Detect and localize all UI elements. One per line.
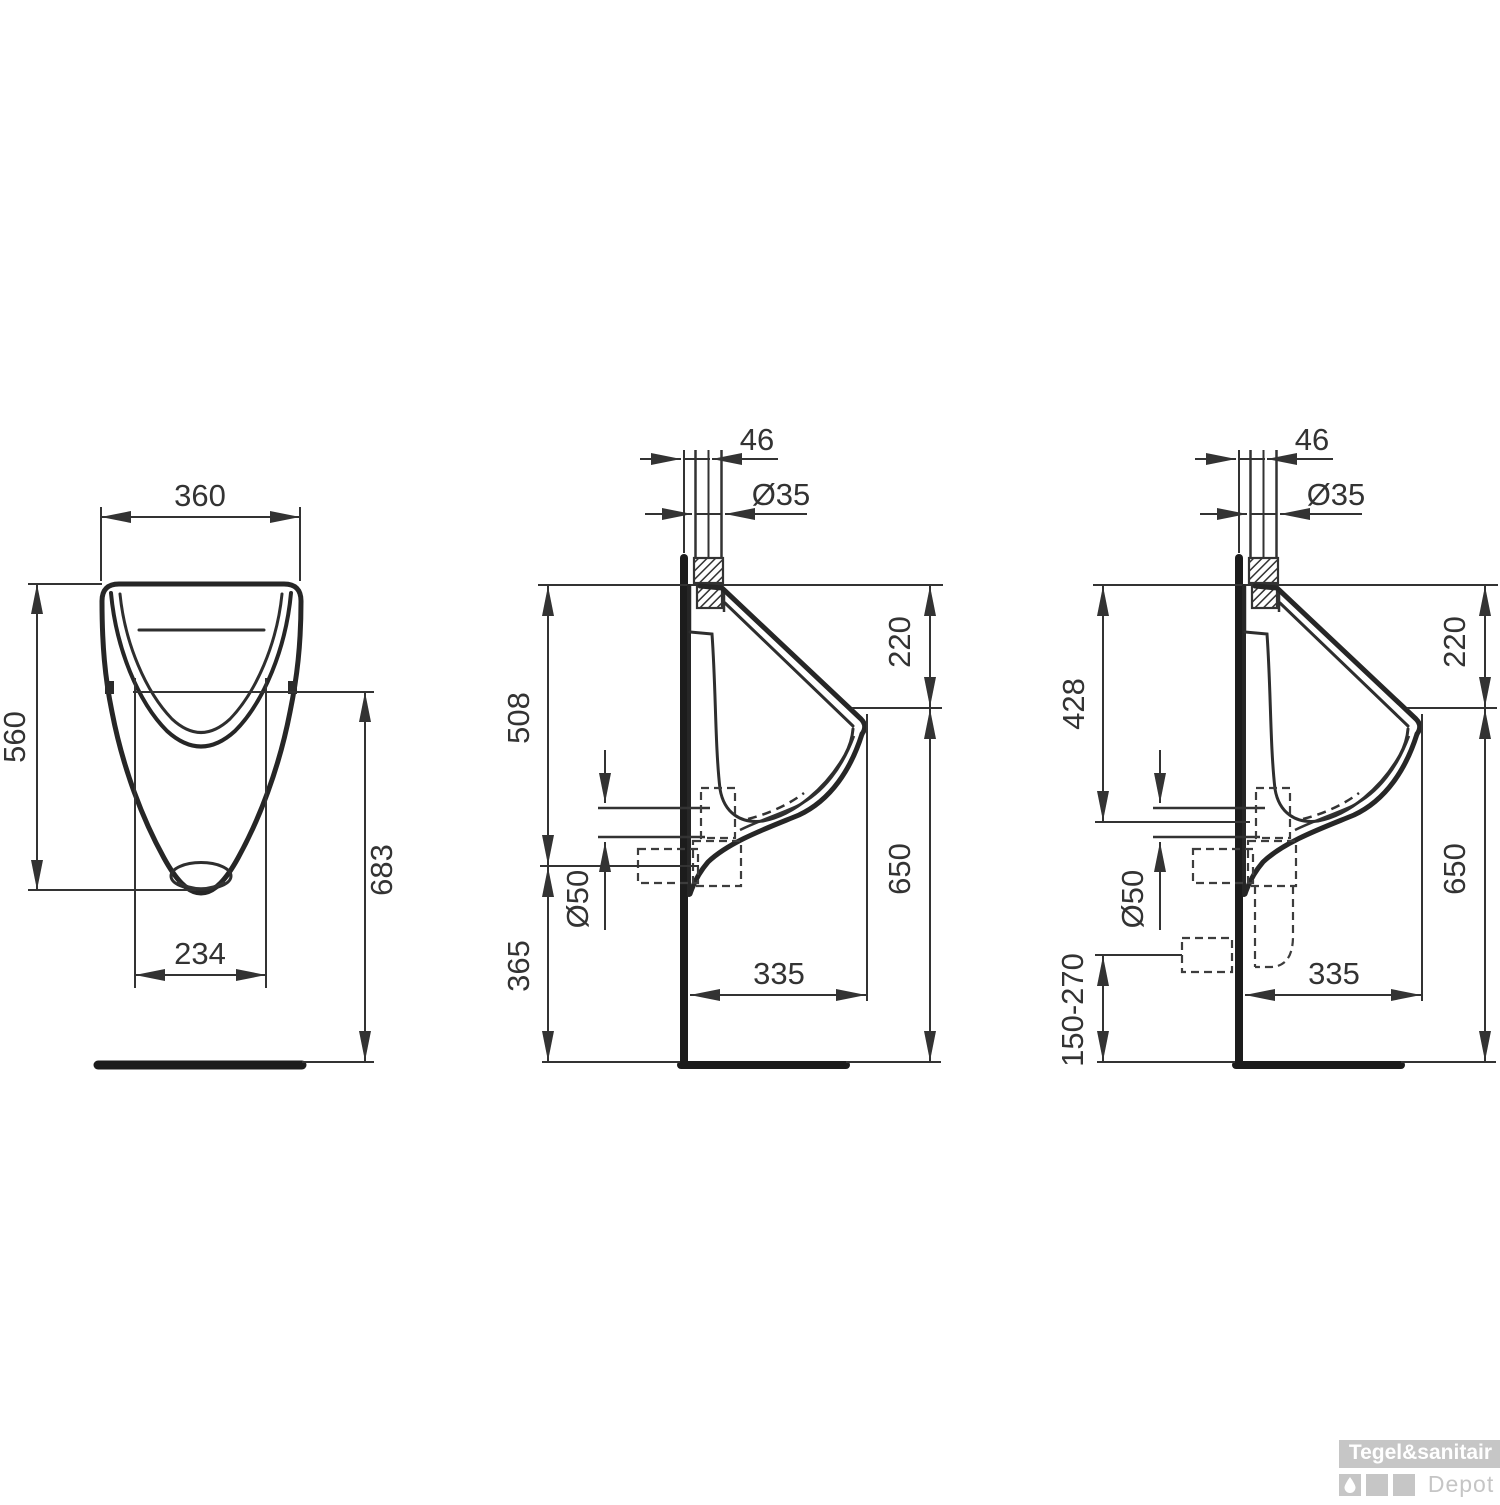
dim-label-outlet-height-range: 150-270 (1055, 953, 1090, 1067)
dim-label-overall-width: 360 (174, 478, 226, 513)
outlet-opening (171, 863, 231, 890)
hidden-elbow-pipe (1255, 886, 1293, 967)
dim-overall-width: 360 (101, 478, 300, 581)
dim-label-spout-to-floor: 650 (1437, 843, 1472, 895)
dim-label-bowl-width: 234 (174, 936, 226, 971)
watermark-brand-label: Tegel&sanitair (1339, 1440, 1500, 1468)
dim-outlet-diameter: Ø50 (560, 750, 605, 930)
dim-label-outlet-diameter: Ø50 (1115, 870, 1150, 929)
side-view-wall-outlet: 46 Ø35 508 365 Ø50 220 650 (501, 422, 943, 1065)
dim-inlet-diameter: Ø35 (1200, 477, 1365, 514)
dim-label-depth: 335 (1308, 956, 1360, 991)
dim-top-to-outlet: 428 (1056, 586, 1250, 822)
dim-label-inlet-offset: 46 (1295, 422, 1329, 457)
dim-label-outlet-diameter: Ø50 (560, 870, 595, 929)
side-fixing-left (105, 681, 114, 694)
watermark-square (1393, 1474, 1415, 1496)
dim-label-top-to-outlet: 428 (1056, 678, 1091, 730)
urinal-front-outline (102, 584, 301, 893)
dim-inlet-diameter: Ø35 (645, 477, 810, 514)
dim-label-inlet-diameter: Ø35 (1307, 477, 1366, 512)
dim-depth: 335 (1245, 956, 1421, 995)
dim-label-inlet-diameter: Ø35 (752, 477, 811, 512)
dim-label-inlet-offset: 46 (740, 422, 774, 457)
dim-depth: 335 (690, 956, 866, 995)
dim-label-top-to-spout: 220 (1437, 616, 1472, 668)
dim-bowl-width: 234 (135, 678, 266, 988)
dim-label-top-to-outlet: 508 (501, 692, 536, 744)
watermark-sub-label: Depot (1420, 1471, 1494, 1498)
front-view: 360 560 683 234 (0, 478, 399, 1065)
low-wall-connector (1182, 938, 1232, 972)
watermark-square (1366, 1474, 1388, 1496)
dim-top-to-spout: 220 (1437, 586, 1485, 707)
dim-label-spout-to-floor: 650 (882, 843, 917, 895)
dim-top-to-outlet: 508 (501, 586, 548, 865)
rim-outer-curve (111, 593, 291, 747)
urinal-technical-drawing: 360 560 683 234 (0, 0, 1500, 1500)
side-view-floor-outlet: 46 Ø35 428 150-270 Ø50 220 (1055, 422, 1498, 1067)
watermark: Tegel&sanitair Depot (1339, 1440, 1500, 1498)
dim-spout-to-floor: 650 (1437, 709, 1485, 1061)
product-technical-sheet: { "dims": { "front": { "overall_width": … (0, 0, 1500, 1500)
dim-label-outlet-to-floor: 365 (501, 940, 536, 992)
dim-outlet-height-range: 150-270 (1055, 953, 1182, 1067)
dim-label-rim-to-floor: 683 (364, 844, 399, 896)
dim-outlet-diameter: Ø50 (1115, 750, 1160, 930)
dim-label-top-to-spout: 220 (882, 616, 917, 668)
dim-top-to-spout: 220 (882, 586, 930, 707)
dim-spout-to-floor: 650 (882, 709, 930, 1061)
water-drop-icon (1339, 1474, 1361, 1496)
rim-inner-curve (120, 594, 282, 733)
dim-outlet-to-floor: 365 (501, 866, 699, 1061)
dim-label-depth: 335 (753, 956, 805, 991)
dim-label-overall-height: 560 (0, 711, 32, 763)
